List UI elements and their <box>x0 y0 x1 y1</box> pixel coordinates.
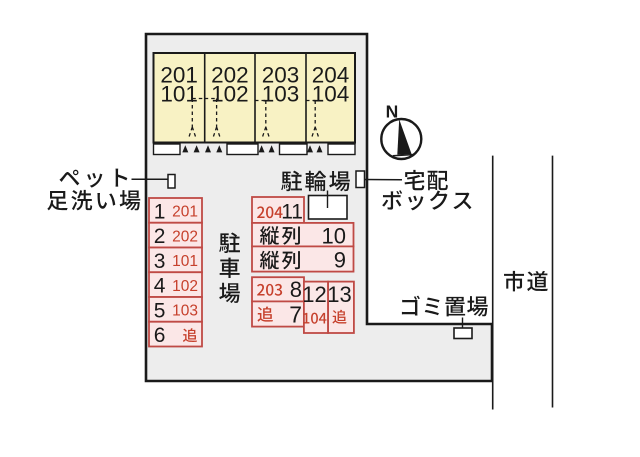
svg-text:2: 2 <box>154 225 166 248</box>
svg-text:102: 102 <box>172 278 198 295</box>
svg-text:202: 202 <box>172 228 198 245</box>
svg-text:N: N <box>386 101 399 121</box>
svg-text:10: 10 <box>322 224 346 249</box>
svg-text:101: 101 <box>160 82 198 107</box>
svg-text:103: 103 <box>172 303 198 320</box>
svg-text:4: 4 <box>154 275 166 298</box>
svg-text:1: 1 <box>154 200 166 223</box>
svg-text:104: 104 <box>312 82 350 107</box>
svg-text:8: 8 <box>290 277 302 302</box>
svg-text:201: 201 <box>172 204 198 221</box>
svg-text:7: 7 <box>289 302 302 328</box>
svg-text:103: 103 <box>262 82 300 107</box>
svg-text:3: 3 <box>154 250 166 273</box>
svg-text:101: 101 <box>172 253 198 270</box>
svg-text:12: 12 <box>302 282 326 307</box>
svg-text:6: 6 <box>154 324 166 347</box>
svg-text:11: 11 <box>281 200 303 223</box>
svg-text:13: 13 <box>327 282 351 307</box>
svg-text:102: 102 <box>211 82 249 107</box>
svg-text:9: 9 <box>334 247 346 272</box>
svg-text:5: 5 <box>154 299 166 322</box>
